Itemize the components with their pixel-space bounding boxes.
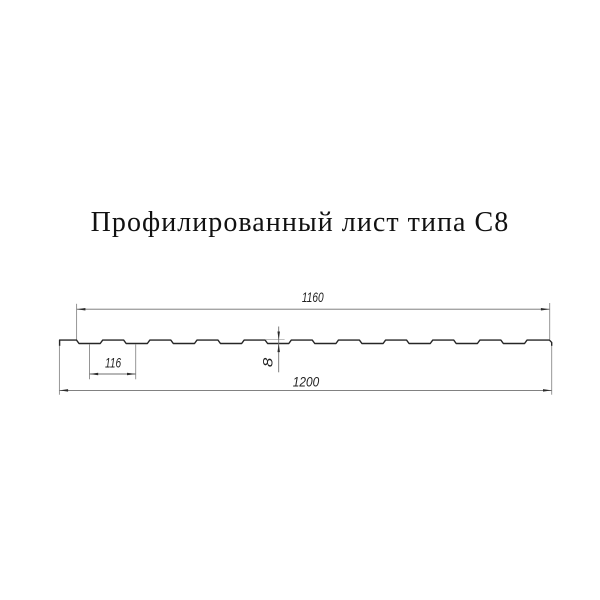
svg-text:1200: 1200	[293, 374, 319, 390]
svg-text:1160: 1160	[302, 290, 324, 306]
svg-text:116: 116	[105, 355, 121, 371]
svg-text:8: 8	[261, 357, 276, 367]
